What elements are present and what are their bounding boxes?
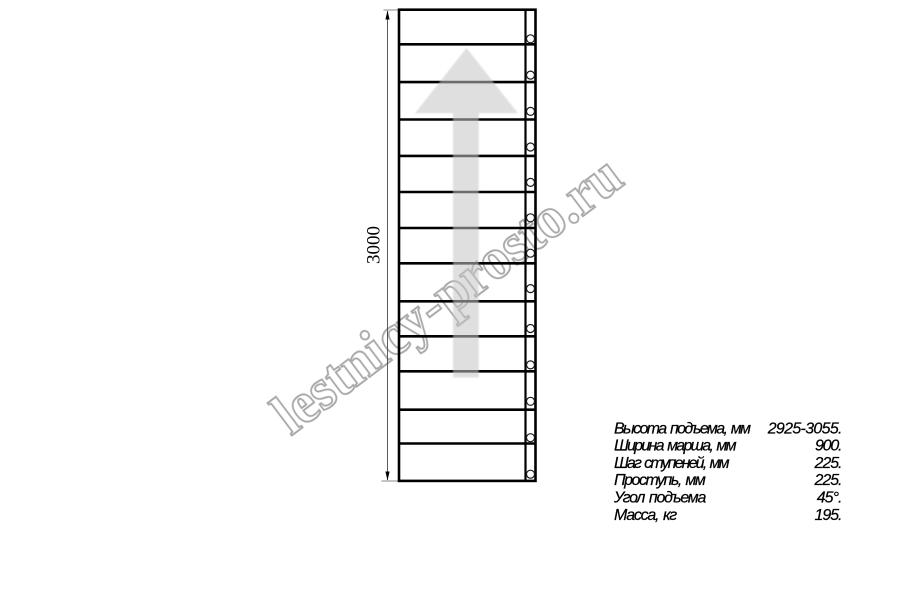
svg-text:900.: 900. xyxy=(815,438,843,455)
svg-text:Угол подъема: Угол подъема xyxy=(613,490,706,507)
svg-text:Масса, кг: Масса, кг xyxy=(614,507,677,524)
svg-text:225.: 225. xyxy=(814,455,843,472)
svg-text:Ширина марша, мм: Ширина марша, мм xyxy=(614,438,737,455)
svg-text:Проступь, мм: Проступь, мм xyxy=(614,472,706,489)
svg-text:2925-3055.: 2925-3055. xyxy=(767,420,843,437)
svg-text:225.: 225. xyxy=(814,472,843,489)
svg-text:3000: 3000 xyxy=(364,226,385,264)
svg-text:195.: 195. xyxy=(815,507,843,524)
svg-text:Высота подъема, мм: Высота подъема, мм xyxy=(614,420,751,437)
svg-text:45°.: 45°. xyxy=(817,490,843,507)
svg-text:Шаг ступеней, мм: Шаг ступеней, мм xyxy=(614,455,730,472)
